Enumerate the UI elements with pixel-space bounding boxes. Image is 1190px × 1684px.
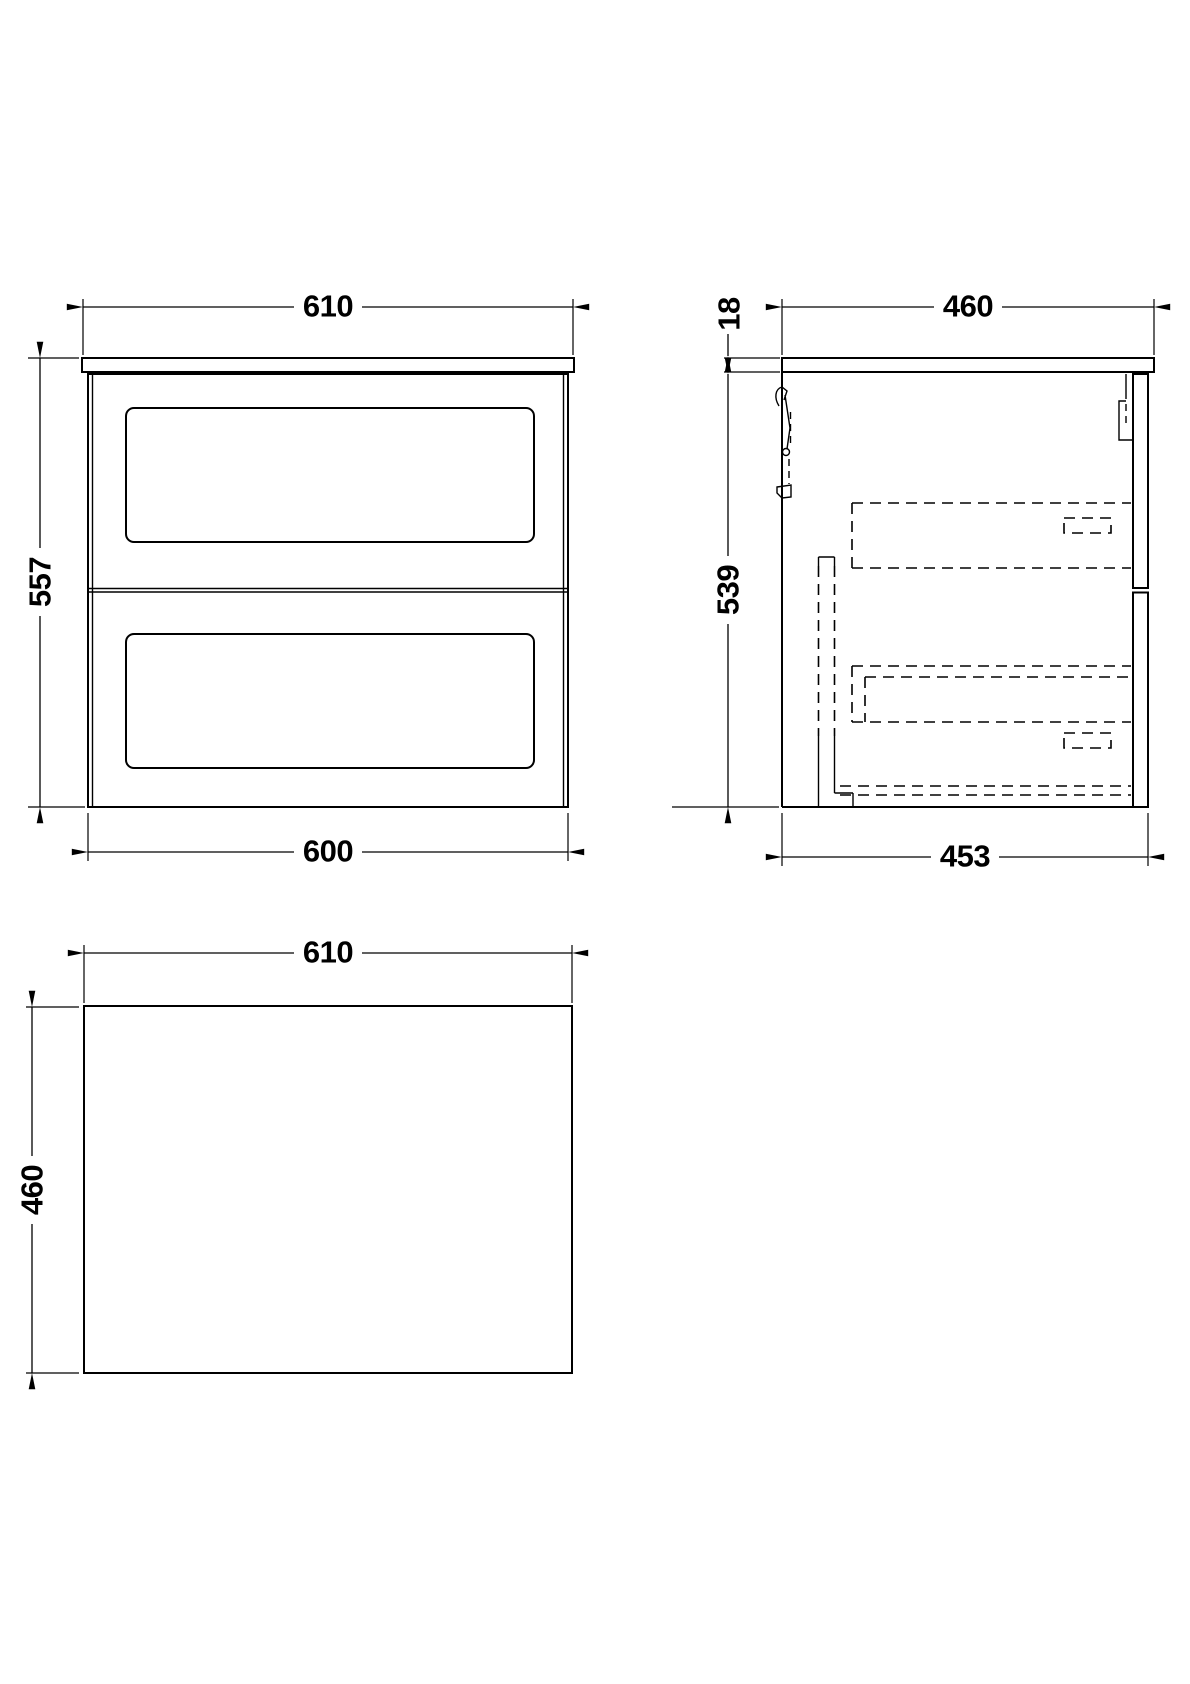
- side-drawer2-front-face: [1133, 593, 1148, 808]
- side-view: 460 18: [672, 289, 1154, 875]
- bracket-adjuster-screw: [783, 449, 790, 456]
- side-depth-bottom-value: 453: [940, 839, 990, 874]
- bracket-foot: [777, 485, 791, 498]
- drawer1-runner-bracket: [1064, 518, 1111, 533]
- side-depth-top-value: 460: [943, 289, 993, 324]
- back-panel-hidden-edges: [819, 566, 835, 736]
- side-dim-depth-top: 460: [782, 289, 1154, 356]
- side-back-panel: [819, 557, 854, 807]
- plan-dim-width-top: 610: [84, 935, 572, 1004]
- front-countertop: [82, 358, 574, 372]
- side-countertop: [782, 358, 1154, 372]
- front-dim-height-left: 557: [22, 358, 85, 807]
- side-drawer1-front-face: [1133, 374, 1148, 588]
- bottom-shelf-hidden-edges: [840, 786, 1131, 795]
- front-drawer2-recessed-panel: [126, 634, 534, 768]
- plan-view: 610 460: [14, 935, 572, 1374]
- drawer2-runner-bracket: [1064, 733, 1111, 748]
- vanity-unit-drawing: 610 557 600 460: [0, 0, 1190, 1684]
- front-drawer-separation: [88, 589, 568, 593]
- wall-hanging-bracket: [776, 387, 791, 498]
- technical-drawing-page: 610 557 600 460: [0, 0, 1190, 1684]
- front-height-value: 557: [23, 557, 58, 607]
- side-drawer2-hidden-box: [840, 666, 1131, 795]
- side-drawer1-hidden-box: [852, 503, 1131, 568]
- side-dim-depth-bottom: 453: [782, 813, 1148, 874]
- front-cabinet-body: [88, 374, 568, 807]
- extension-lines: [724, 358, 780, 372]
- plan-dim-depth-left: 460: [14, 1007, 79, 1373]
- front-view: 610 557 600: [22, 289, 574, 870]
- front-dim-width-top: 610: [83, 289, 573, 356]
- side-height-value: 539: [711, 565, 746, 615]
- front-width-bottom-value: 600: [303, 834, 353, 869]
- side-dim-worktop-thickness: 18: [712, 296, 781, 372]
- drawer1-box-outline: [852, 503, 1131, 568]
- drawer2-box-outline: [852, 666, 1131, 722]
- front-cabinet-inner-edges: [93, 374, 564, 807]
- plan-worktop-outline: [84, 1006, 572, 1373]
- side-worktop-thickness-value: 18: [712, 297, 747, 331]
- plan-width-value: 610: [303, 935, 353, 970]
- front-width-top-value: 610: [303, 289, 353, 324]
- plan-depth-value: 460: [15, 1165, 50, 1215]
- back-panel-solid-edges: [819, 557, 854, 807]
- side-dim-height-left: 539: [672, 374, 779, 807]
- front-dim-width-bottom: 600: [88, 813, 568, 869]
- front-drawer1-recessed-panel: [126, 408, 534, 542]
